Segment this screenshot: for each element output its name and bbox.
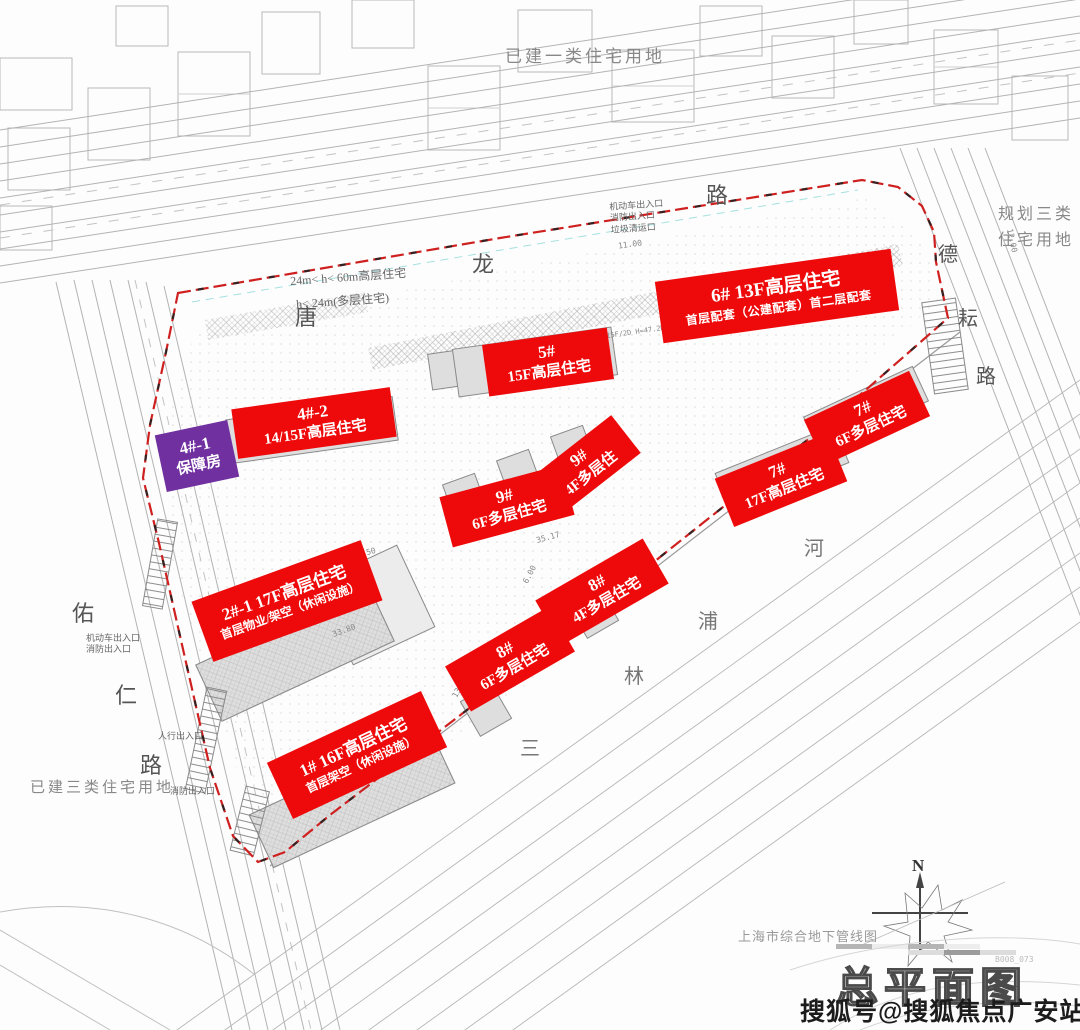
watermark: 搜狐号@搜狐焦点广安站 (800, 992, 1075, 1028)
entrance-notes-west: 机动车出入口 消防出入口 (86, 633, 140, 656)
entrance-notes-north: 机动车出入口 消防出入口 垃圾清运口 (609, 198, 665, 235)
road-deyun-char-3: 路 (976, 360, 996, 389)
site-plan-canvas: 总平面图 已建一类住宅用地 规划三类 住宅用地 已建三类住宅用地 唐 龙 路 佑… (0, 0, 1080, 1030)
existing-residential-north (0, 0, 1068, 250)
sheet-number: B008_073 (995, 955, 1034, 964)
river-char-4: 河 (804, 532, 824, 561)
road-deyun-char-2: 耘 (958, 302, 978, 331)
north-label: N (912, 856, 924, 876)
entrance-fire-southwest: 消防出入口 (170, 786, 215, 797)
entrance-west-line2: 消防出入口 (86, 644, 140, 655)
building-label-line1: 5# (537, 340, 557, 364)
landuse-north-label: 已建一类住宅用地 (505, 42, 665, 67)
road-tanglong-char-3: 路 (706, 178, 728, 210)
entrance-west-line1: 机动车出入口 (86, 633, 140, 644)
landuse-east-line1: 规划三类 (998, 202, 1074, 228)
entrance-pedestrian: 人行出入口 (158, 731, 203, 742)
building-label-line2: 15F高层住宅 (506, 357, 592, 388)
southwest-roads (0, 907, 255, 1030)
river-char-1: 三 (520, 732, 540, 761)
road-youren-char-1: 佑 (72, 596, 94, 628)
scale-bar (836, 944, 1016, 955)
road-deyun-char-1: 德 (938, 238, 958, 267)
pipeline-note: 上海市综合地下管线图 (738, 926, 878, 945)
road-youren-char-2: 仁 (115, 678, 137, 710)
road-tanglong-char-2: 龙 (472, 247, 494, 279)
road-youren-char-3: 路 (140, 748, 162, 780)
river-char-3: 浦 (698, 605, 718, 634)
river-char-2: 林 (624, 660, 644, 689)
